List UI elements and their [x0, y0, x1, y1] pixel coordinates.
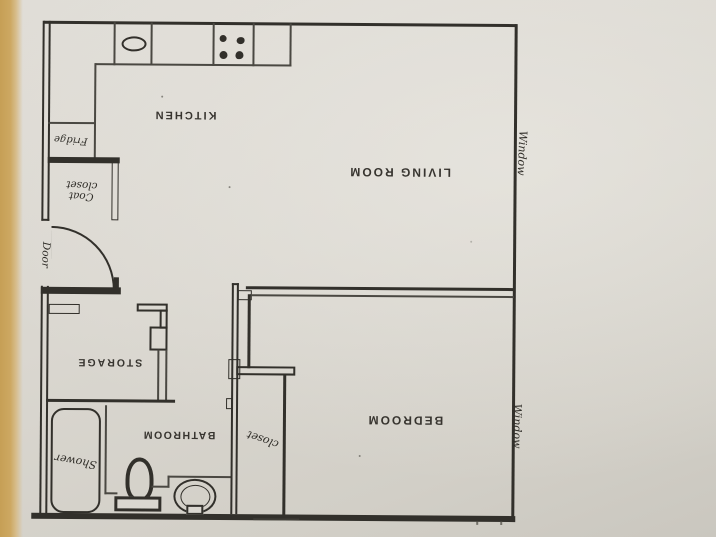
bedroom-closet-label: closet: [245, 428, 280, 450]
bedroom-closet-hook: [228, 359, 240, 379]
storage-right-wall-lower-b: [165, 350, 167, 402]
outer-wall-left-lower-outer: [39, 286, 43, 514]
storage-right-wall-lower-a: [157, 350, 159, 402]
dust-speck: [470, 241, 472, 243]
stove-burner-icon: [220, 35, 227, 42]
floor-plan-photo: Fridge Coat closet Door STORAGE Shower: [0, 0, 716, 537]
bedroom-closet-top-bar: [236, 366, 295, 375]
kitchen-counter-divider: [212, 23, 214, 66]
stove-burner-icon: [235, 51, 243, 59]
pencil-tick: [500, 521, 502, 525]
coat-closet-label: Coat closet: [65, 178, 98, 202]
bedroom-window-label: Window: [511, 404, 523, 449]
kitchen-counter-bottom-edge: [95, 63, 291, 66]
bedroom-closet-wall-upper: [247, 294, 251, 368]
living-room-window-label: Window: [515, 131, 528, 176]
bedroom-label: BEDROOM: [367, 413, 444, 428]
bedroom-living-wall-inner: [250, 294, 514, 298]
kitchen-counter-divider: [150, 23, 152, 66]
kitchen-cabinet-side-edge: [94, 63, 97, 159]
living-room-label: LIVING ROOM: [348, 165, 451, 180]
storage-door-jamb: [114, 277, 119, 289]
kitchen-sink-icon: [122, 36, 147, 51]
kitchen-counter-divider: [252, 23, 254, 66]
bathroom-label: BATHROOM: [142, 428, 215, 441]
storage-door-leaf-icon: [149, 327, 167, 351]
entry-door-label: Door: [39, 242, 51, 269]
dust-speck: [229, 186, 231, 188]
bathroom-bedroom-wall-inner: [235, 283, 239, 514]
entry-door-arc-icon: [51, 226, 115, 290]
dust-speck: [161, 96, 163, 98]
storage-shelf: [49, 304, 80, 314]
stove-burner-icon: [219, 51, 227, 59]
kitchen-counter-right-edge: [289, 24, 291, 67]
bathroom-bedroom-wall-cap: [232, 283, 239, 285]
pencil-dash: [253, 518, 299, 520]
bedroom-living-wall-outer: [246, 286, 514, 291]
pencil-tick: [476, 521, 478, 525]
storage-label: STORAGE: [76, 356, 142, 368]
floor-plan: Fridge Coat closet Door STORAGE Shower: [0, 0, 716, 537]
fridge-label: Fridge: [54, 132, 88, 145]
coat-closet-top-wall: [48, 157, 120, 164]
tub-surround-edge-h: [104, 492, 117, 494]
bedroom-closet-wall-right: [282, 373, 286, 515]
kitchen-label: KITCHEN: [154, 109, 217, 121]
outer-wall-left-upper-outer: [41, 21, 44, 221]
outer-wall-left-upper-inner: [47, 21, 50, 221]
bathroom-bedroom-wall-outer: [230, 283, 234, 514]
outer-wall-bottom: [31, 513, 515, 522]
fridge-top-edge: [48, 122, 96, 124]
storage-top-wall: [41, 287, 121, 295]
stove-burner-icon: [237, 37, 245, 44]
storage-bottom-wall: [46, 399, 175, 403]
coat-closet-right-wall: [111, 160, 118, 220]
left-wall-door-jamb-cap: [41, 219, 49, 221]
dust-speck: [359, 455, 361, 457]
tub-surround-edge-v: [104, 405, 107, 494]
kitchen-counter-divider: [113, 22, 115, 65]
